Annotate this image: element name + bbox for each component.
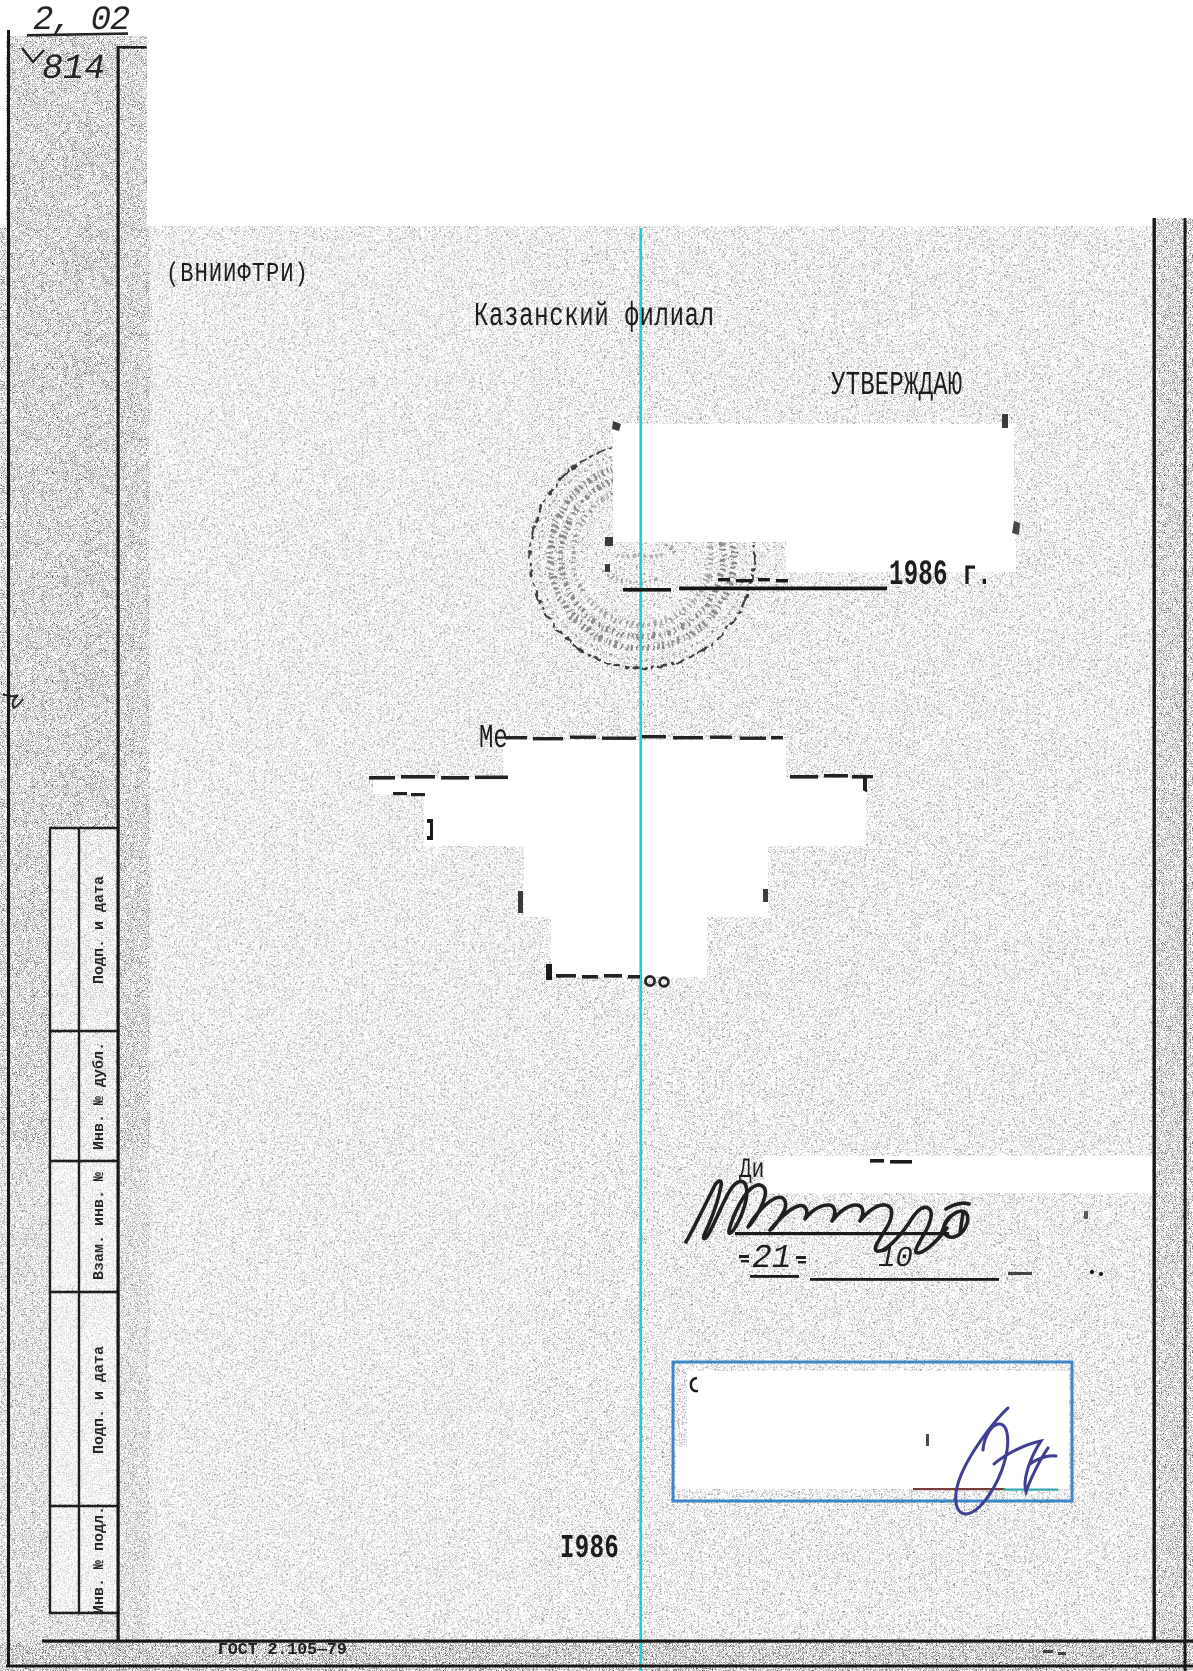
svg-text:УТВЕРЖДАЮ: УТВЕРЖДАЮ	[831, 367, 962, 405]
svg-text:1986 г.: 1986 г.	[889, 555, 992, 595]
svg-text:Подп. и дата: Подп. и дата	[91, 1346, 108, 1454]
svg-text:21: 21	[752, 1240, 792, 1277]
svg-text:I986: I986	[560, 1529, 619, 1567]
svg-text:814: 814	[42, 49, 105, 89]
svg-text:Ме: Ме	[479, 720, 508, 758]
svg-text:ГОСТ 2.105—79: ГОСТ 2.105—79	[218, 1640, 347, 1659]
svg-text:Казанский филиал: Казанский филиал	[474, 298, 715, 336]
svg-text:Инв. № подл.: Инв. № подл.	[91, 1506, 108, 1614]
svg-text:10: 10	[878, 1242, 913, 1275]
svg-text:Взам. инв. №: Взам. инв. №	[91, 1172, 108, 1280]
svg-text:Подп. и дата: Подп. и дата	[91, 876, 108, 984]
svg-text:(ВНИИФТРИ): (ВНИИФТРИ)	[166, 260, 309, 289]
svg-text:Инв. № дубл.: Инв. № дубл.	[91, 1042, 108, 1150]
